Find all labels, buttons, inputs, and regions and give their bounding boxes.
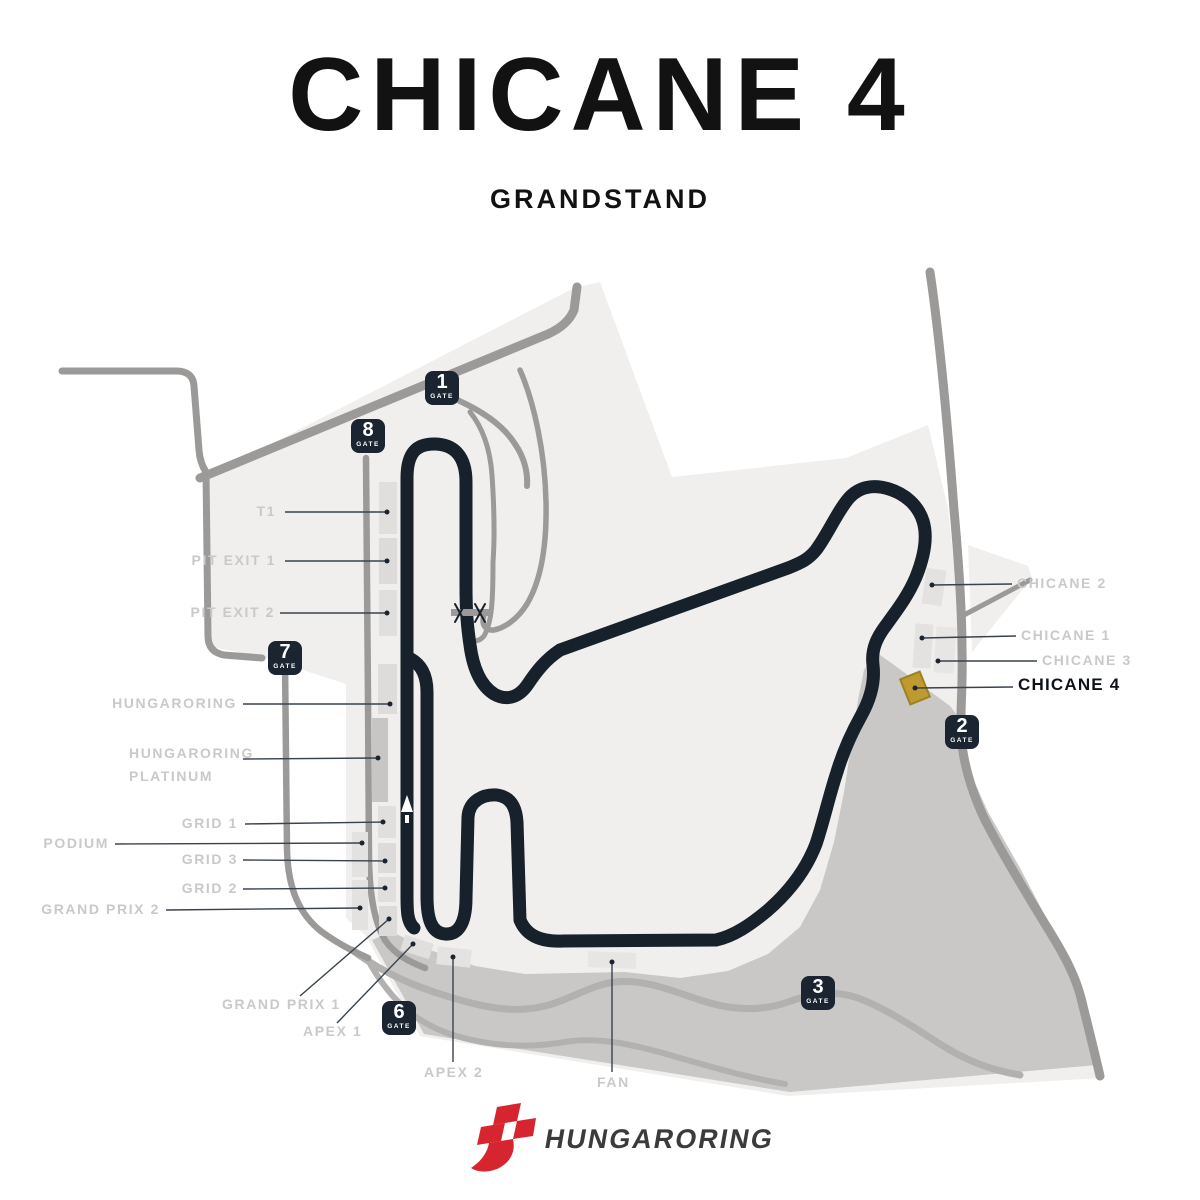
- gate-3-badge: 3 GATE: [801, 976, 835, 1010]
- block-chicane-3[interactable]: [933, 626, 956, 673]
- gate-8-number: 8: [351, 420, 385, 441]
- block-hungaroring[interactable]: [378, 664, 397, 714]
- label-apex-1: APEX 1: [303, 1023, 362, 1040]
- label-pit-exit-1: PIT EXIT 1: [192, 552, 276, 569]
- gate-1-caption: GATE: [425, 393, 459, 401]
- label-chicane-4-highlighted: CHICANE 4: [1018, 676, 1120, 693]
- label-hungaroring-platinum: HUNGARORING PLATINUM: [129, 742, 254, 788]
- circuit-map: [0, 0, 1200, 1200]
- label-t1: T1: [256, 503, 276, 520]
- page-subtitle: GRANDSTAND: [0, 184, 1200, 215]
- gate-3-number: 3: [801, 977, 835, 998]
- gate-2-number: 2: [945, 716, 979, 737]
- gate-8-caption: GATE: [351, 441, 385, 449]
- gate-2-caption: GATE: [945, 737, 979, 745]
- gate-7-caption: GATE: [268, 663, 302, 671]
- page-title: CHICANE 4: [0, 38, 1200, 152]
- label-grand-prix-1: GRAND PRIX 1: [222, 996, 341, 1013]
- label-chicane-2: CHICANE 2: [1017, 575, 1107, 592]
- gate-6-number: 6: [382, 1002, 416, 1023]
- block-chicane-1[interactable]: [912, 623, 933, 668]
- hungaroring-wordmark: HUNGARORING: [542, 1124, 776, 1155]
- label-pit-exit-2: PIT EXIT 2: [191, 604, 275, 621]
- label-chicane-1: CHICANE 1: [1021, 627, 1111, 644]
- label-hungaroring: HUNGARORING: [112, 695, 237, 712]
- block-t1[interactable]: [379, 482, 397, 534]
- gate-7-badge: 7 GATE: [268, 641, 302, 675]
- gate-7-number: 7: [268, 642, 302, 663]
- gate-2-badge: 2 GATE: [945, 715, 979, 749]
- label-grid-1: GRID 1: [182, 815, 238, 832]
- gate-6-caption: GATE: [382, 1023, 416, 1031]
- gate-3-caption: GATE: [801, 998, 835, 1006]
- label-chicane-3: CHICANE 3: [1042, 652, 1132, 669]
- label-apex-2: APEX 2: [424, 1064, 483, 1081]
- gate-6-badge: 6 GATE: [382, 1001, 416, 1035]
- label-fan: FAN: [597, 1074, 630, 1091]
- label-grand-prix-2: GRAND PRIX 2: [41, 901, 160, 918]
- gate-8-badge: 8 GATE: [351, 419, 385, 453]
- gate-1-badge: 1 GATE: [425, 371, 459, 405]
- label-grid-2: GRID 2: [182, 880, 238, 897]
- gate-1-number: 1: [425, 372, 459, 393]
- chicane4-grandstand-map-page: CHICANE 4 GRANDSTAND T1 PIT EXIT 1 PIT E…: [0, 0, 1200, 1200]
- label-podium: PODIUM: [43, 835, 109, 852]
- hungaroring-logo-icon: [471, 1103, 536, 1172]
- block-hungaroring-platinum[interactable]: [372, 718, 388, 802]
- block-grid-3[interactable]: [378, 843, 396, 873]
- label-grid-3: GRID 3: [182, 851, 238, 868]
- block-podium[interactable]: [352, 832, 368, 877]
